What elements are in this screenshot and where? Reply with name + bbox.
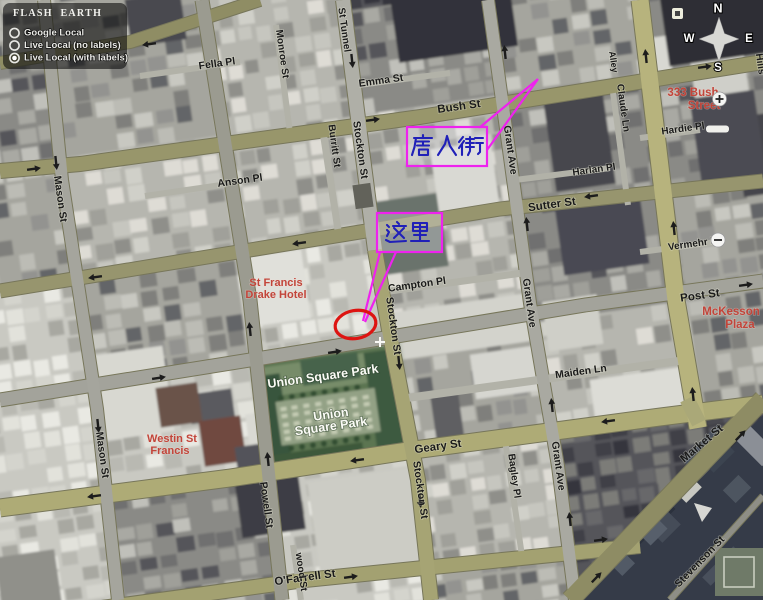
- svg-text:W: W: [684, 33, 695, 45]
- svg-text:McKesson: McKesson: [702, 306, 760, 318]
- svg-text:Drake Hotel: Drake Hotel: [245, 289, 306, 301]
- svg-text:Westin St: Westin St: [147, 433, 197, 445]
- svg-text:Francis: Francis: [150, 445, 189, 457]
- svg-text:N: N: [713, 1, 722, 15]
- svg-text:333 Bush: 333 Bush: [667, 87, 718, 99]
- svg-text:Live Local (with labels): Live Local (with labels): [24, 53, 128, 64]
- svg-text:Plaza: Plaza: [725, 319, 755, 331]
- svg-text:St Francis: St Francis: [249, 277, 302, 289]
- svg-text:Live Local (no labels): Live Local (no labels): [24, 40, 121, 51]
- svg-text:E: E: [745, 33, 753, 45]
- svg-text:FLASH EARTH: FLASH EARTH: [13, 8, 102, 19]
- svg-text:S: S: [714, 62, 722, 74]
- svg-text:Google Local: Google Local: [24, 28, 84, 39]
